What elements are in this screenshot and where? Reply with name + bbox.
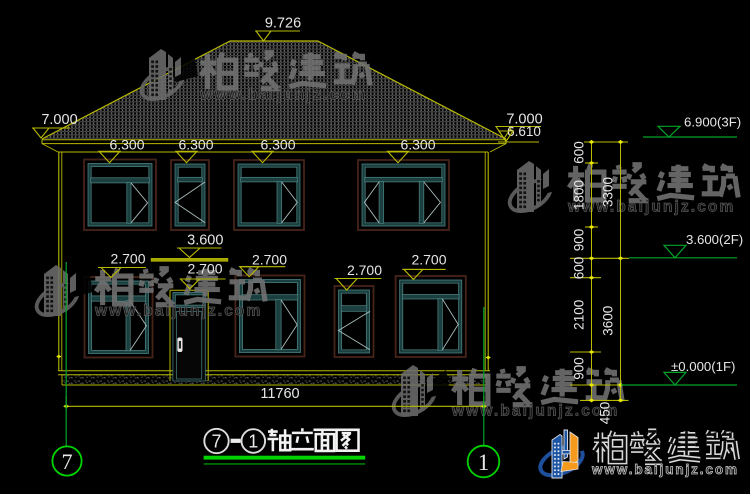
svg-text:±0.000(1F): ±0.000(1F) <box>671 359 735 374</box>
svg-text:2100: 2100 <box>572 300 587 330</box>
svg-text:6.300: 6.300 <box>400 137 435 153</box>
svg-text:2.700: 2.700 <box>411 252 446 268</box>
svg-text:7: 7 <box>62 449 73 474</box>
svg-text:2.700: 2.700 <box>252 251 287 267</box>
svg-text:2.700: 2.700 <box>347 262 382 278</box>
svg-text:www.baijunjz.com: www.baijunjz.com <box>567 199 735 216</box>
svg-text:1: 1 <box>248 432 258 452</box>
svg-text:2.700: 2.700 <box>110 251 145 267</box>
svg-text:www.baijunjz.com: www.baijunjz.com <box>591 462 739 477</box>
svg-text:900: 900 <box>572 229 587 252</box>
svg-text:3300: 3300 <box>601 177 616 207</box>
svg-text:450: 450 <box>598 402 613 425</box>
svg-text:1800: 1800 <box>572 180 587 210</box>
svg-text:1: 1 <box>478 450 490 475</box>
svg-text:7.000: 7.000 <box>41 112 77 128</box>
svg-text:www.baijunjz.com: www.baijunjz.com <box>451 403 619 420</box>
svg-text:9.726: 9.726 <box>265 16 301 32</box>
svg-text:7: 7 <box>211 432 221 452</box>
svg-text:3.600(2F): 3.600(2F) <box>686 232 743 247</box>
svg-text:2.700: 2.700 <box>187 261 222 277</box>
svg-text:3.600: 3.600 <box>187 232 223 248</box>
svg-text:3600: 3600 <box>601 306 616 336</box>
svg-text:600: 600 <box>572 141 587 164</box>
svg-text:11760: 11760 <box>260 386 299 402</box>
svg-text:600: 600 <box>572 257 587 280</box>
svg-text:6.300: 6.300 <box>260 137 295 153</box>
svg-text:6.300: 6.300 <box>178 137 213 153</box>
svg-text:6.900(3F): 6.900(3F) <box>684 115 741 130</box>
svg-text:6.300: 6.300 <box>109 137 144 153</box>
svg-text:www.baijunjz.com: www.baijunjz.com <box>199 87 367 104</box>
svg-text:900: 900 <box>572 357 587 380</box>
svg-text:www.baijunjz.com: www.baijunjz.com <box>94 303 262 320</box>
